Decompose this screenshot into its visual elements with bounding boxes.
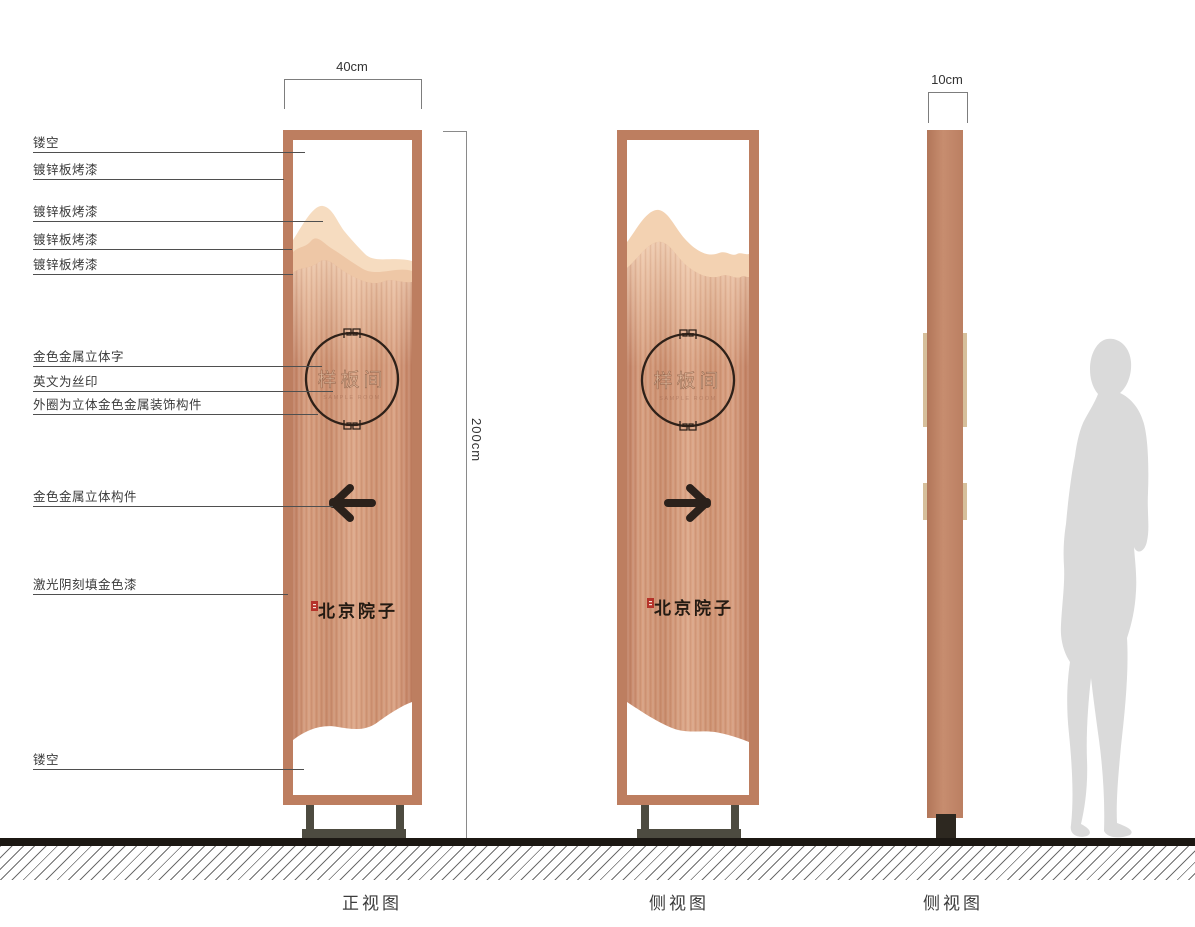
dim-thickness-label: 10cm [920, 72, 974, 87]
side-base-bar [637, 829, 741, 838]
brand-logo: 北京院子 [311, 601, 398, 621]
plaque-text-english: SAMPLE ROOM [659, 396, 716, 402]
front-base-leg-right [396, 805, 404, 832]
ground-hatch-pattern [0, 846, 1195, 880]
person-silhouette [1061, 339, 1149, 838]
human-scale-silhouette [1035, 336, 1170, 838]
side-base-leg-right [731, 805, 739, 832]
front-base-bar [302, 829, 406, 838]
annotation-galvanized-2: 镀锌板烤漆 [33, 205, 323, 222]
dim-height-line [466, 131, 467, 838]
brand-text: 北京院子 [318, 601, 398, 621]
annotation-english-silkscreen: 英文为丝印 [33, 375, 333, 392]
plaque-text: 样板间 [653, 370, 722, 392]
panel-body-brush-texture [627, 242, 749, 742]
front-base-leg-left [306, 805, 314, 832]
annotation-label: 金色金属立体字 [33, 350, 322, 366]
design-drawing-canvas: 镂空 镀锌板烤漆 镀锌板烤漆 镀锌板烤漆 镀锌板烤漆 金色金属立体字 英文为丝印… [0, 0, 1195, 927]
caption-side-view-2: 侧视图 [878, 889, 1028, 914]
annotation-label: 镂空 [33, 753, 304, 769]
dim-height-tick [443, 131, 466, 132]
annotation-label: 英文为丝印 [33, 375, 333, 391]
annotation-label: 镀锌板烤漆 [33, 205, 323, 221]
brand-text: 北京院子 [654, 598, 734, 618]
ground-line [0, 838, 1195, 846]
side-base-leg-left [641, 805, 649, 832]
annotation-label: 激光阴刻填金色漆 [33, 578, 288, 594]
caption-front-view: 正视图 [297, 889, 447, 914]
annotation-galvanized-3: 镀锌板烤漆 [33, 233, 292, 250]
plaque-text-english: SAMPLE ROOM [323, 395, 380, 401]
annotation-hollow-bottom: 镂空 [33, 753, 304, 770]
annotation-gold-3d-letters: 金色金属立体字 [33, 350, 322, 367]
side-view-pillar: 样板间 SAMPLE ROOM 北京院子 [617, 130, 759, 805]
dim-thickness-bracket [928, 92, 968, 123]
profile-base-block [936, 814, 956, 838]
annotation-galvanized-4: 镀锌板烤漆 [33, 258, 293, 275]
dim-width-label: 40cm [284, 59, 420, 74]
annotation-label: 外圈为立体金色金属装饰构件 [33, 398, 318, 414]
annotation-label: 镀锌板烤漆 [33, 258, 293, 274]
seal-icon [311, 601, 318, 611]
dim-width-bracket [284, 79, 422, 109]
profile-view-pillar [927, 130, 963, 818]
dim-height-label: 200cm [469, 418, 484, 462]
annotation-label: 金色金属立体构件 [33, 490, 333, 506]
annotation-hollow-top: 镂空 [33, 136, 305, 153]
annotation-label: 镀锌板烤漆 [33, 233, 292, 249]
annotation-laser-engraved: 激光阴刻填金色漆 [33, 578, 288, 595]
annotation-outer-ring: 外圈为立体金色金属装饰构件 [33, 398, 318, 415]
brand-logo: 北京院子 [647, 598, 734, 618]
caption-side-view-1: 侧视图 [604, 889, 754, 914]
annotation-galvanized-1: 镀锌板烤漆 [33, 163, 284, 180]
seal-icon [647, 598, 654, 608]
front-view-graphic: 样板间 SAMPLE ROOM 北京院子 [293, 140, 412, 795]
front-view-pillar: 样板间 SAMPLE ROOM 北京院子 [283, 130, 422, 805]
side-view-graphic: 样板间 SAMPLE ROOM 北京院子 [627, 140, 749, 795]
annotation-label: 镂空 [33, 136, 305, 152]
annotation-label: 镀锌板烤漆 [33, 163, 284, 179]
annotation-gold-3d-component: 金色金属立体构件 [33, 490, 333, 507]
